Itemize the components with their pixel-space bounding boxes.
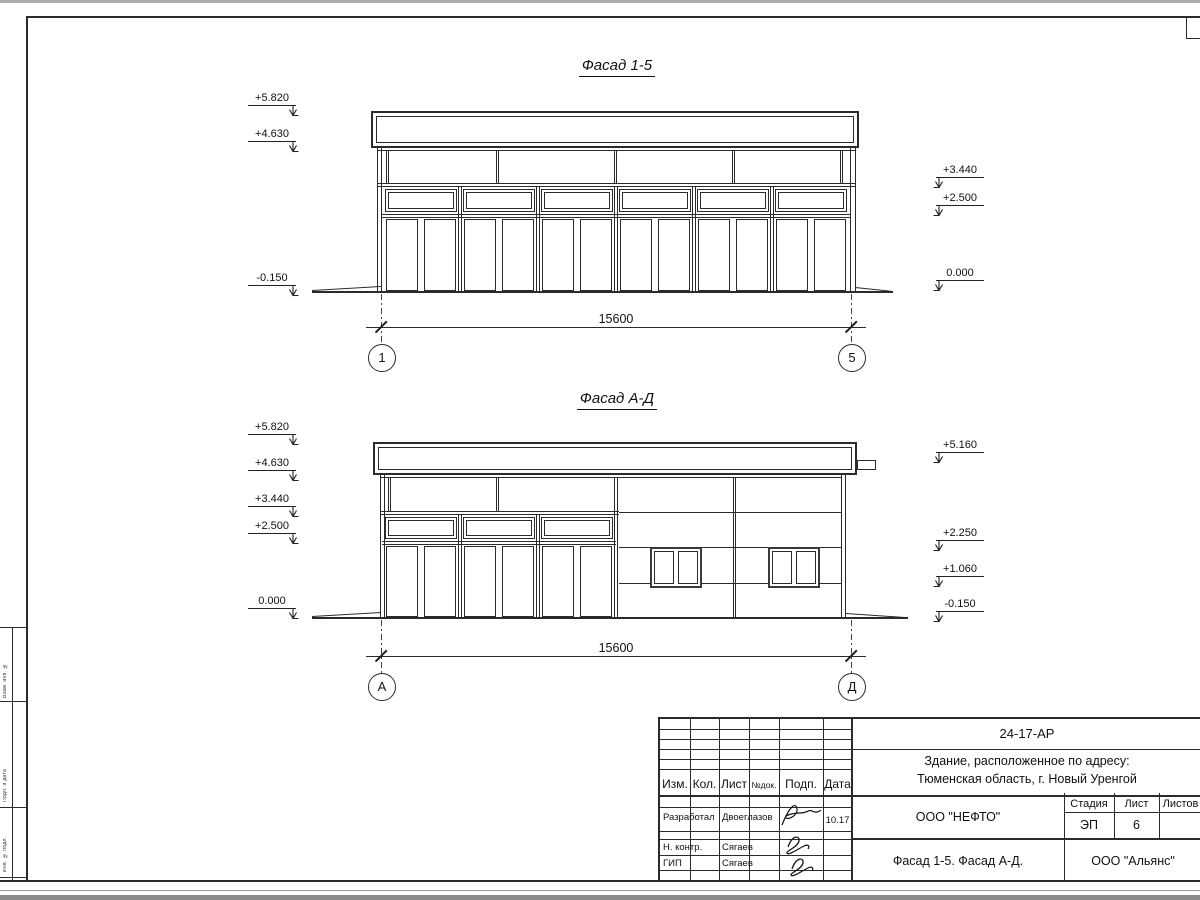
tb-line [660, 749, 852, 750]
tb-col-header: №док. [749, 780, 779, 790]
elevation-arrow-icon [933, 177, 945, 190]
axis-bubble-a: А [368, 673, 396, 701]
wall-edge-left [377, 148, 382, 291]
window-pane [796, 551, 816, 584]
mullion [614, 477, 618, 619]
elevation-arrow-icon [287, 285, 299, 298]
elevation-arrow-icon [287, 506, 299, 519]
mullion [536, 187, 540, 291]
extension-line [381, 294, 382, 346]
signature [778, 799, 822, 829]
elevation-mark: 0.000 [248, 595, 296, 609]
glazing-pane [542, 546, 574, 617]
tb-col-header: Лист [719, 777, 749, 791]
elevation-arrow-icon [933, 611, 945, 624]
elevation-arrow-icon [933, 540, 945, 553]
elevation-mark: +5.160 [936, 439, 984, 453]
stage-value: ЭП [1064, 818, 1114, 832]
glazing-pane [424, 546, 456, 617]
transom-bottom-line [382, 541, 616, 545]
glazing-pane [698, 219, 730, 291]
side-stamp-label: Инв. № подл. [3, 812, 11, 872]
dimension-line [366, 327, 866, 328]
scan-edge-bottom-line [0, 890, 1200, 891]
elevation-arrow-icon [287, 434, 299, 447]
elevation-label: +3.440 [936, 164, 984, 178]
transom-window [385, 189, 457, 212]
axis-bubble-5: 5 [838, 344, 866, 372]
tb-line [660, 795, 852, 797]
company-name: ООО "Альянс" [1064, 854, 1200, 868]
elevation-mark: -0.150 [248, 272, 296, 286]
signature [778, 833, 824, 879]
glazing-pane [580, 546, 612, 617]
elevation-arrow-icon [933, 452, 945, 465]
tb-name: Сягаев [722, 858, 753, 869]
transom-window [463, 189, 535, 212]
elevation-mark: +3.440 [248, 493, 296, 507]
elevation-mark: +2.500 [936, 192, 984, 206]
elevation-label: -0.150 [248, 272, 296, 286]
transom-bottom-line [382, 214, 850, 218]
axis-bubble-d: Д [838, 673, 866, 701]
glazing-pane [502, 219, 534, 291]
tb-role: ГИП [663, 858, 682, 869]
tb-date: 10.17 [824, 815, 851, 826]
window-pane [772, 551, 792, 584]
drawing-sheet: Взам. инв. № Подп. и дата Инв. № подл. Ф… [0, 0, 1200, 900]
wall-joint-line [619, 512, 841, 513]
elevation-arrow-icon [933, 280, 945, 293]
band-bottom-line [380, 511, 619, 515]
scan-edge-bottom [0, 895, 1200, 900]
fascia-band [373, 442, 857, 475]
glazing-pane [424, 219, 456, 291]
wall-edge-right [850, 148, 856, 291]
elevation-arrow-icon [287, 470, 299, 483]
glazing-pane [658, 219, 690, 291]
mullion [692, 187, 696, 291]
elevation-mark: +1.060 [936, 563, 984, 577]
band-mullion [840, 150, 843, 183]
window [768, 547, 820, 588]
facade-title: Фасад А-Д [517, 390, 717, 407]
glazing-pane [814, 219, 846, 291]
tb-col-header: Кол. [690, 777, 719, 791]
extension-line [851, 294, 852, 346]
project-address-line2: Тюменская область, г. Новый Уренгой [852, 772, 1200, 786]
frame-top [27, 16, 1200, 18]
elevation-mark: 0.000 [936, 267, 984, 281]
elevation-mark: +4.630 [248, 457, 296, 471]
elevation-label: +5.820 [248, 92, 296, 106]
glazing-pane [386, 219, 418, 291]
fascia-bracket [857, 460, 876, 470]
sheet-title: Фасад 1-5. Фасад А-Д. [852, 854, 1064, 868]
tb-line [660, 831, 852, 832]
extension-line [381, 620, 382, 675]
project-code: 24-17-АР [852, 726, 1200, 741]
stage-header: Стадия [1064, 798, 1114, 810]
side-stamp-label: Взам. инв. № [3, 630, 11, 698]
tb-line [852, 749, 1200, 750]
elevation-arrow-icon [933, 205, 945, 218]
side-stamp-divider [0, 627, 27, 628]
tb-name: Сягаев [722, 842, 753, 853]
elevation-arrow-icon [287, 608, 299, 621]
tb-line [852, 838, 1200, 840]
extension-line [851, 620, 852, 675]
elevation-arrow-icon [287, 105, 299, 118]
dimension-label: 15600 [561, 312, 671, 326]
transom-window [775, 189, 847, 212]
elevation-mark: +2.500 [248, 520, 296, 534]
mullion [458, 187, 462, 291]
band-mullion [386, 150, 389, 183]
elevation-label: +2.500 [936, 192, 984, 206]
elevation-mark: +3.440 [936, 164, 984, 178]
band-mullion [732, 150, 735, 183]
elevation-label: 0.000 [248, 595, 296, 609]
elevation-label: +3.440 [248, 493, 296, 507]
frame-corner-cell-h [1186, 38, 1200, 39]
elevation-label: 0.000 [936, 267, 984, 281]
tb-line [852, 795, 1200, 797]
transom-window [541, 517, 613, 539]
elevation-mark: +5.820 [248, 92, 296, 106]
ground-line [312, 617, 908, 619]
elevation-label: +5.820 [248, 421, 296, 435]
tb-role: Н. контр. [663, 842, 702, 853]
glazing-pane [736, 219, 768, 291]
sheet-number: 6 [1114, 818, 1159, 832]
mullion [614, 187, 618, 291]
elevation-arrow-icon [933, 576, 945, 589]
elevation-mark: -0.150 [936, 598, 984, 612]
transom-window [385, 517, 457, 539]
elevation-arrow-icon [287, 533, 299, 546]
glazing-pane [776, 219, 808, 291]
band-mullion [496, 150, 499, 183]
fascia-band [371, 111, 859, 148]
tb-line [1064, 812, 1200, 813]
elevation-label: +5.160 [936, 439, 984, 453]
elevation-label: +2.250 [936, 527, 984, 541]
elevation-label: +2.500 [248, 520, 296, 534]
title-block: Изм. Кол. Лист №док. Подп. Дата Разработ… [658, 717, 1200, 882]
sheets-header: Листов [1159, 798, 1200, 810]
axis-bubble-1: 1 [368, 344, 396, 372]
wall-corner-right [841, 475, 846, 619]
tb-line [660, 807, 852, 808]
tb-col-header: Подп. [779, 777, 823, 791]
band-top-line [380, 477, 841, 478]
glazing-pane [620, 219, 652, 291]
org-name: ООО "НЕФТО" [852, 810, 1064, 824]
tb-line [660, 739, 852, 740]
mullion [770, 187, 774, 291]
mullion [536, 515, 540, 619]
glazing-pane [464, 219, 496, 291]
window-pane [678, 551, 698, 584]
sheet-header: Лист [1114, 798, 1159, 810]
window-pane [654, 551, 674, 584]
elevation-label: -0.150 [936, 598, 984, 612]
side-stamp-divider [0, 701, 27, 702]
ground-line [312, 291, 893, 293]
elevation-label: +4.630 [248, 457, 296, 471]
tb-line [660, 759, 852, 760]
glazing-pane [580, 219, 612, 291]
glazing-pane [502, 546, 534, 617]
transom-window [619, 189, 691, 212]
elevation-mark: +2.250 [936, 527, 984, 541]
side-stamp-divider [0, 807, 27, 808]
transom-window [463, 517, 535, 539]
side-stamp-inner-line [12, 627, 13, 880]
tb-line [660, 769, 852, 770]
tb-role: Разработал [663, 812, 715, 823]
band-mullion [388, 477, 391, 511]
window [650, 547, 702, 588]
transom-window [697, 189, 769, 212]
dimension-label: 15600 [561, 641, 671, 655]
wall-panel-joint [733, 477, 736, 619]
elevation-label: +4.630 [248, 128, 296, 142]
transom-window [541, 189, 613, 212]
glazing-pane [464, 546, 496, 617]
tb-col-header: Дата [823, 777, 852, 791]
elevation-arrow-icon [287, 141, 299, 154]
tb-col-header: Изм. [660, 777, 690, 791]
tb-line [660, 729, 852, 730]
elevation-mark: +4.630 [248, 128, 296, 142]
facade-title: Фасад 1-5 [517, 57, 717, 74]
band-mullion [614, 150, 617, 183]
glazing-pane [542, 219, 574, 291]
side-stamp-label: Подп. и дата [3, 706, 11, 802]
band-mullion [496, 477, 499, 511]
project-address-line1: Здание, расположенное по адресу: [852, 754, 1200, 768]
tb-name: Двоеглазов [722, 812, 773, 823]
dimension-line [366, 656, 866, 657]
elevation-mark: +5.820 [248, 421, 296, 435]
frame-left [26, 16, 28, 882]
side-stamp-divider [0, 877, 27, 878]
scan-edge-top [0, 0, 1200, 3]
wall-edge-left [380, 475, 385, 619]
frame-corner-cell-v [1186, 16, 1187, 38]
elevation-label: +1.060 [936, 563, 984, 577]
mullion [458, 515, 462, 619]
glazing-pane [386, 546, 418, 617]
